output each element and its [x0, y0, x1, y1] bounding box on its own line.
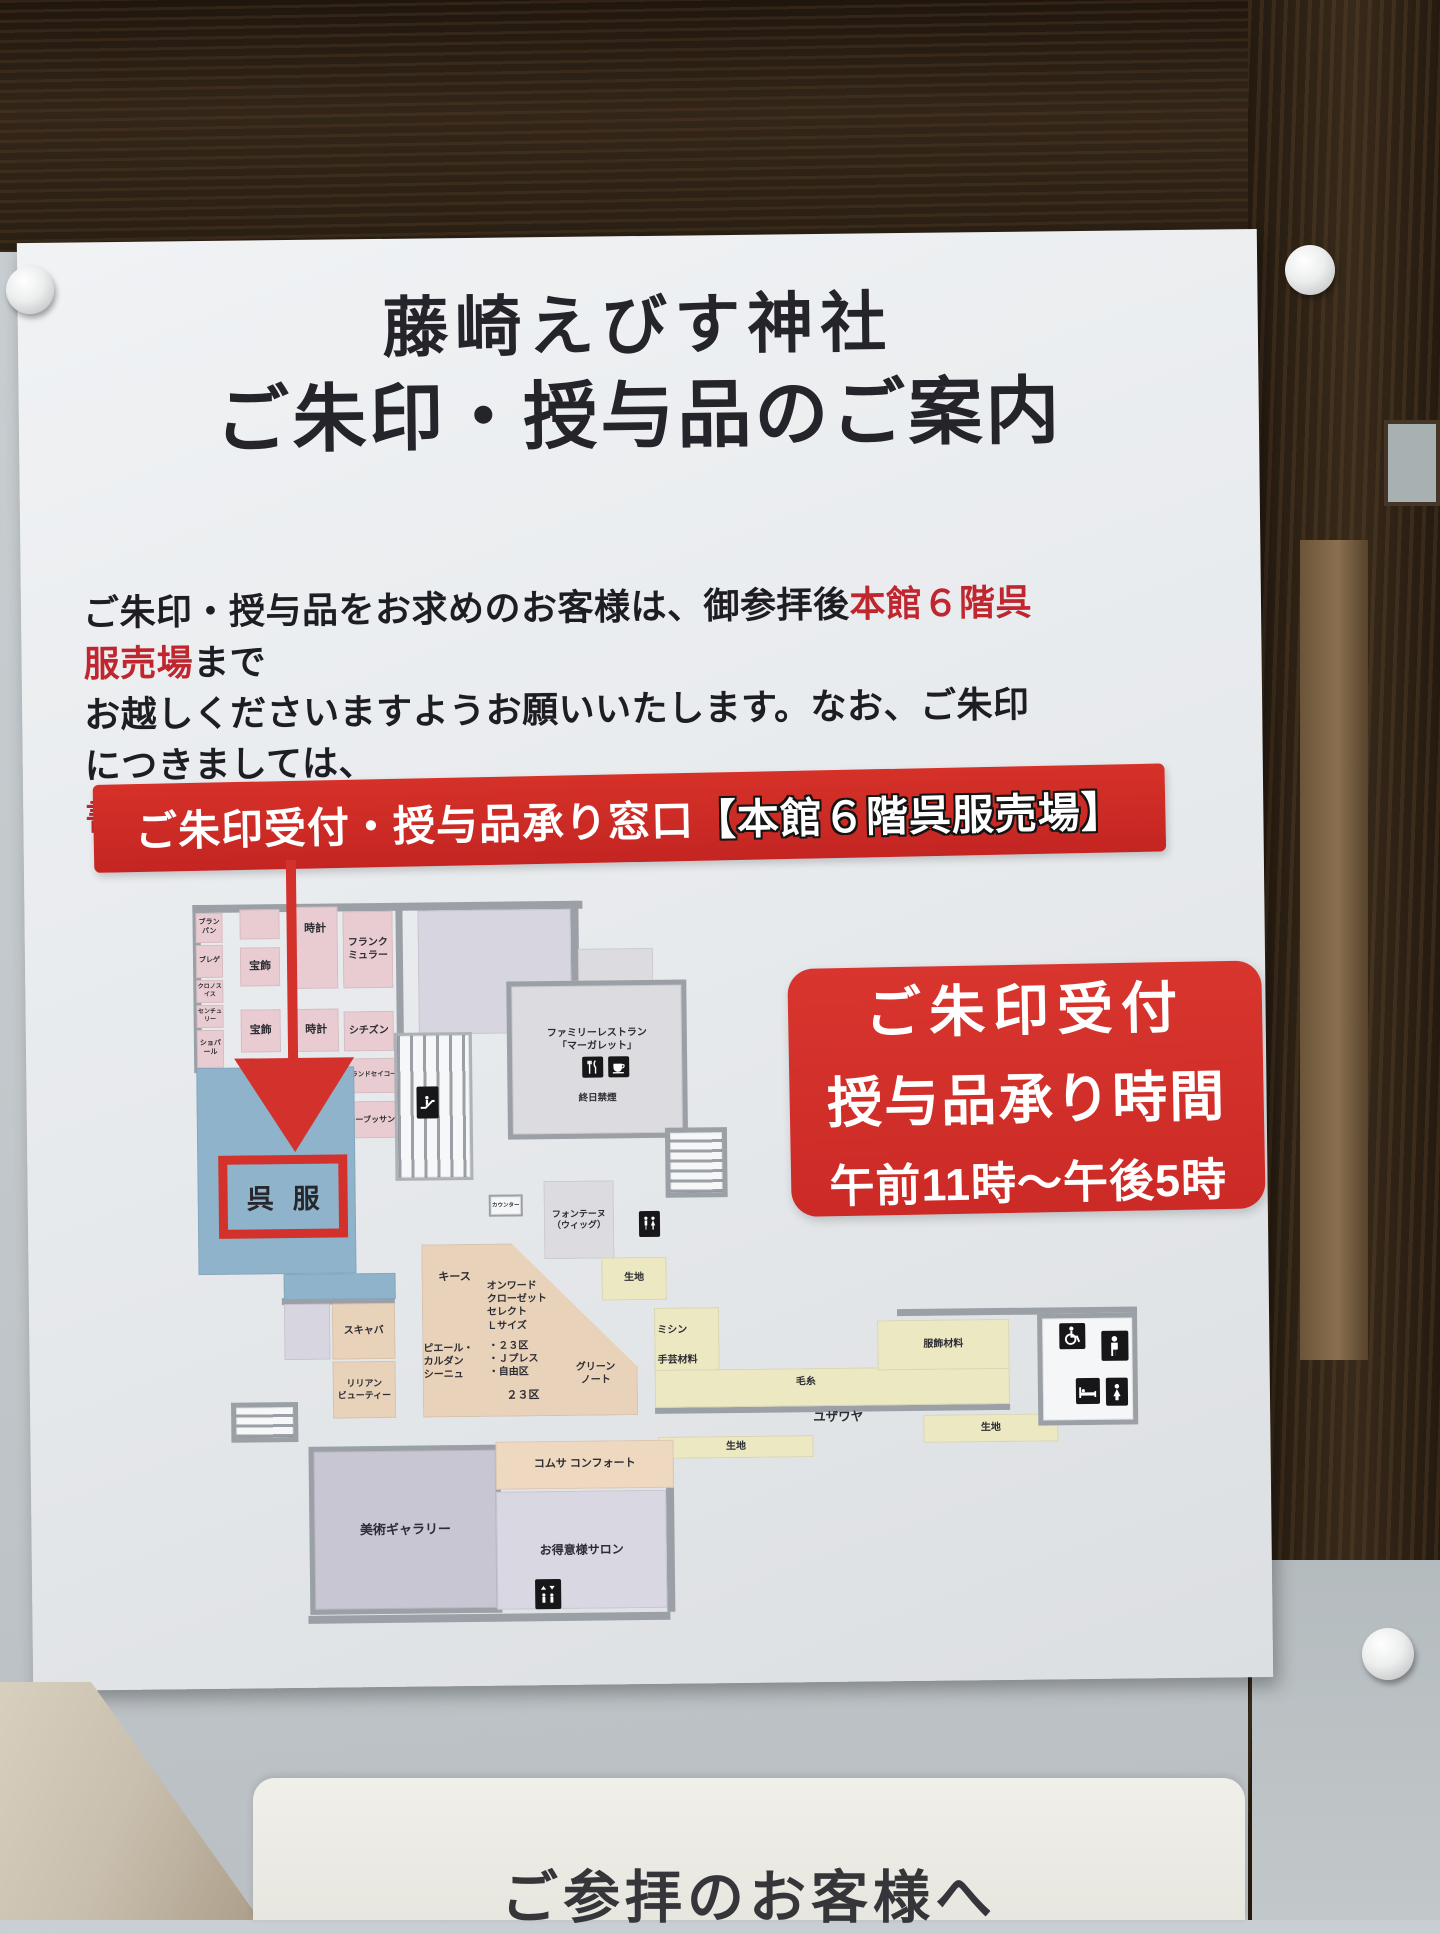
banner-location: 【本館６階呉服売場】 — [693, 778, 1124, 848]
reception-hours-box: ご朱印受付 授与品承り時間 午前11時〜午後5時 — [787, 960, 1265, 1217]
notice-title: ご朱印・授与品のご案内 — [18, 349, 1259, 470]
wood-frame-top — [0, 0, 1440, 252]
stone-pillar — [0, 1682, 260, 1920]
map-region-keito-bar — [655, 1366, 1010, 1408]
map-region-scabal: スキャバ — [332, 1303, 396, 1360]
paragraph-text: まで — [193, 642, 266, 683]
map-label-brands-23ku: ・２３区 ・Ｊプレス ・自由区 — [488, 1339, 568, 1379]
map-label-restaurant-note: 終日禁煙 — [508, 1092, 688, 1107]
map-region-label: クロノスイス — [196, 984, 223, 999]
map-region-comme-ca: コムサ コンフォート — [495, 1440, 674, 1490]
map-region-century: センチュリー — [196, 1005, 223, 1028]
map-wall — [395, 908, 403, 1036]
push-pin — [1285, 245, 1335, 295]
map-region-chopard: ショパール — [197, 1030, 224, 1068]
map-region-franck-muller: フランク ミュラー — [342, 911, 393, 989]
red-arrow-down-icon — [234, 1057, 355, 1152]
secondary-sign: ご参拝のお客様へ — [253, 1778, 1245, 1920]
map-region-counter: カウンター — [489, 1194, 523, 1216]
map-label-shugei: 手芸材料 — [657, 1353, 717, 1367]
paragraph-text: ご朱印・授与品をお求めのお客様は、御参拝後 — [83, 585, 850, 634]
wall-patch — [1252, 1560, 1440, 1920]
map-region-label: フォンテーヌ （ウィッグ） — [544, 1208, 614, 1231]
map-label-keith: キース — [425, 1270, 485, 1285]
map-label-restaurant-name: ファミリーレストラン 「マーガレット」 — [507, 1026, 687, 1054]
map-region-gofuku-blue-ext — [284, 1273, 396, 1300]
map-region-tokei-1: 時計 — [292, 906, 338, 989]
elevator-icon — [535, 1579, 561, 1609]
fork-icon — [582, 1056, 603, 1077]
map-region-bijutsu-gallery: 美術ギャラリー — [309, 1445, 503, 1615]
map-region-restaurant-upper — [578, 948, 653, 983]
map-region-stairs-left — [231, 1402, 298, 1443]
map-region-label: ブレゲ — [196, 957, 223, 966]
escalator-icon — [416, 1086, 438, 1118]
female-icon — [1106, 1378, 1128, 1406]
map-label-keito: 毛糸 — [781, 1375, 831, 1389]
map-region-label: 宝飾 — [241, 1024, 281, 1038]
male-icon — [1101, 1331, 1128, 1361]
map-region-hoshoku-1: 宝飾 — [240, 947, 280, 986]
hours-line1: ご朱印受付 — [864, 963, 1185, 1050]
background-window — [1384, 420, 1440, 506]
map-region-hoshoku-2: 宝飾 — [241, 1009, 281, 1052]
map-region-kiji-left: 生地 — [658, 1435, 813, 1459]
map-region-label: お得意様サロン — [497, 1541, 667, 1558]
photo-scene: { "sign": { "title_line1": "藤崎えびす神社", "t… — [0, 0, 1440, 1920]
map-region-box-annex — [284, 1304, 331, 1361]
map-region-salon: お得意様サロン — [496, 1490, 667, 1610]
map-region-label: フランク ミュラー — [343, 937, 393, 963]
hours-line2: 授与品承り時間 — [826, 1051, 1226, 1138]
map-region-label: ブランパン — [196, 919, 223, 937]
map-region-fontaine-wig: フォンテーヌ （ウィッグ） — [544, 1180, 615, 1259]
map-region-label: カウンター — [491, 1202, 521, 1209]
map-region-citizen: シチズン — [344, 1011, 394, 1052]
bed-icon — [1076, 1378, 1100, 1404]
map-region-label: 生地 — [658, 1440, 813, 1454]
map-region-wc-room — [1037, 1312, 1138, 1425]
map-region-label: 宝飾 — [240, 960, 280, 974]
gofuku-highlight: 呉服 — [218, 1154, 348, 1238]
map-region-label: スキャバ — [332, 1325, 395, 1338]
push-pin — [6, 266, 54, 314]
red-guide-line — [286, 860, 298, 1060]
map-label-onward-closet: オンワード クローゼット セレクト Ｌサイズ — [487, 1279, 568, 1333]
map-label-green-note: グリーン ノート — [566, 1360, 626, 1387]
map-label-ku-23: ２３区 — [498, 1388, 548, 1403]
map-region-chronoswiss: クロノスイス — [196, 980, 223, 1003]
map-label-yuzawaya: ユザワヤ — [798, 1408, 878, 1425]
map-region-label: ショパール — [197, 1040, 224, 1058]
map-region-label: コムサ コンフォート — [496, 1457, 674, 1473]
map-label-mishin: ミシン — [657, 1323, 707, 1337]
map-region-label: 美術ギャラリー — [314, 1521, 496, 1539]
map-region-fukushoku: 服飾材料 — [877, 1319, 1010, 1370]
map-region-label: 服飾材料 — [877, 1338, 1009, 1352]
map-region-pink-annex — [239, 909, 279, 939]
map-region-tokei-2: 時計 — [294, 1008, 339, 1052]
map-region-stairs-right — [665, 1127, 728, 1198]
map-region-label: 生地 — [602, 1272, 667, 1285]
map-region-label: シチズン — [344, 1025, 394, 1038]
map-region-blancpain: ブランパン — [195, 913, 222, 943]
map-region-label: 時計 — [294, 1023, 339, 1037]
cafe-icon — [608, 1056, 629, 1077]
secondary-sign-title: ご参拝のお客様へ — [253, 1852, 1245, 1934]
map-region-label: センチュリー — [197, 1009, 224, 1024]
banner-text: ご朱印受付・授与品承り窓口 — [134, 786, 694, 858]
map-region-breguet: ブレゲ — [196, 945, 223, 978]
wc-icon — [639, 1211, 660, 1237]
hours-line3: 午前11時〜午後5時 — [829, 1143, 1228, 1215]
map-region-kiji-center: 生地 — [601, 1257, 666, 1301]
map-label-pierre-cardin: ピエール・ カルダン シーニュ — [423, 1342, 485, 1382]
map-region-label: 時計 — [292, 906, 337, 936]
wheelchair-icon — [1059, 1323, 1085, 1349]
map-region-label: リリアン ビューティー — [333, 1378, 396, 1401]
main-notice-sign: 藤崎えびす神社 ご朱印・授与品のご案内 ご朱印・授与品をお求めのお客様は、御参拝… — [17, 229, 1273, 1691]
push-pin — [1362, 1628, 1414, 1680]
map-region-lilian-beauty: リリアン ビューティー — [333, 1361, 397, 1419]
wood-frame-edge — [1300, 540, 1368, 1360]
